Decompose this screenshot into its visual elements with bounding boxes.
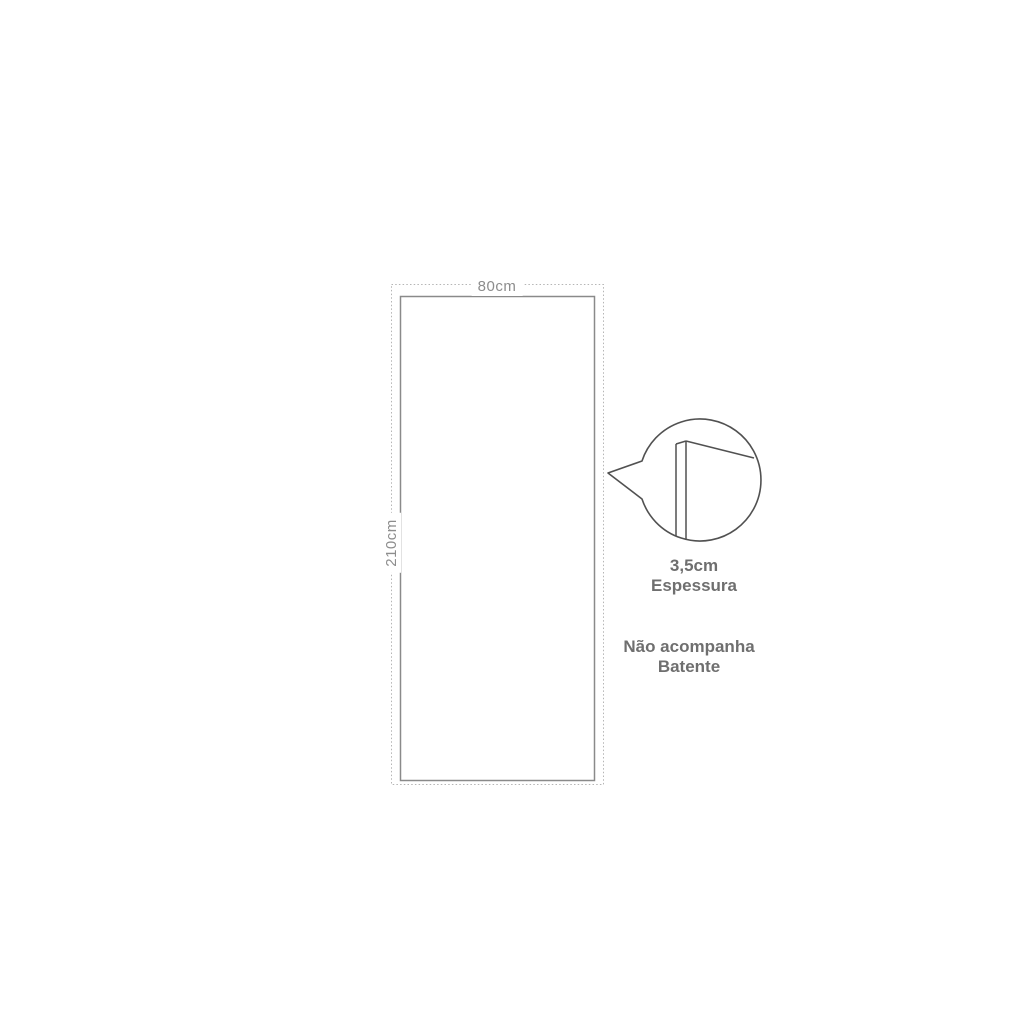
detail-callout-bubble — [608, 419, 761, 541]
thickness-caption: 3,5cm Espessura — [651, 556, 737, 596]
thickness-label: Espessura — [651, 576, 737, 596]
door-panel-outline — [401, 297, 595, 781]
no-frame-note-line1: Não acompanha — [623, 637, 754, 657]
door-dimension-diagram: 80cm 210cm 3,5cm Espessura Não acompanha… — [0, 0, 1024, 1024]
no-frame-note: Não acompanha Batente — [623, 637, 754, 677]
no-frame-note-line2: Batente — [623, 657, 754, 677]
diagram-canvas — [0, 0, 1024, 1024]
door-width-dimension-label: 80cm — [472, 278, 523, 296]
door-height-dimension-label: 210cm — [383, 513, 401, 573]
thickness-value: 3,5cm — [651, 556, 737, 576]
